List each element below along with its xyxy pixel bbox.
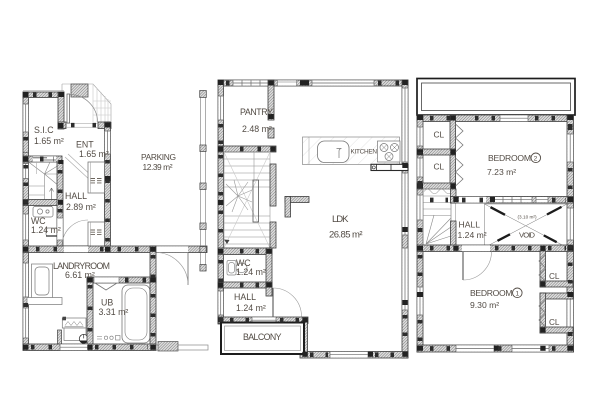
svg-text:PANTRY: PANTRY	[240, 107, 273, 117]
svg-text:12.39 m²: 12.39 m²	[143, 162, 173, 172]
svg-text:CL: CL	[549, 318, 560, 327]
svg-text:2.48 m²: 2.48 m²	[242, 124, 272, 134]
svg-text:6.61 m²: 6.61 m²	[65, 270, 95, 280]
svg-text:CL: CL	[434, 162, 445, 172]
svg-text:CL: CL	[549, 272, 560, 281]
svg-text:1.24 m²: 1.24 m²	[31, 225, 61, 235]
svg-text:ENT: ENT	[76, 140, 94, 150]
svg-text:1.24 m²: 1.24 m²	[458, 230, 487, 240]
svg-text:1.24 m²: 1.24 m²	[236, 303, 266, 313]
svg-text:CL: CL	[434, 130, 445, 140]
svg-text:S.I.C: S.I.C	[34, 125, 54, 135]
svg-text:PARKING: PARKING	[141, 152, 176, 162]
svg-text:1: 1	[516, 291, 520, 298]
svg-text:2.89 m²: 2.89 m²	[66, 202, 96, 212]
svg-text:HALL: HALL	[65, 191, 87, 201]
svg-text:KITCHEN: KITCHEN	[351, 149, 378, 156]
svg-text:HALL: HALL	[234, 292, 256, 302]
svg-text:BEDROOM: BEDROOM	[488, 153, 531, 163]
svg-text:26.85 m²: 26.85 m²	[329, 230, 363, 241]
svg-text:1.65 m²: 1.65 m²	[34, 136, 64, 146]
svg-text:BALCONY: BALCONY	[243, 332, 282, 342]
svg-text:1.65 m²: 1.65 m²	[79, 149, 109, 159]
svg-text:HALL: HALL	[459, 220, 481, 230]
svg-text:VOID: VOID	[519, 231, 536, 240]
svg-text:BEDROOM: BEDROOM	[470, 288, 513, 298]
svg-text:1.24 m²: 1.24 m²	[236, 267, 266, 277]
svg-text:9.30 m²: 9.30 m²	[470, 300, 499, 310]
svg-text:(3.10 m²): (3.10 m²)	[518, 215, 537, 220]
svg-text:2: 2	[534, 156, 538, 163]
svg-text:LDK: LDK	[332, 214, 349, 225]
svg-text:7.23 m²: 7.23 m²	[487, 167, 516, 177]
svg-text:3.31 m²: 3.31 m²	[99, 307, 129, 317]
